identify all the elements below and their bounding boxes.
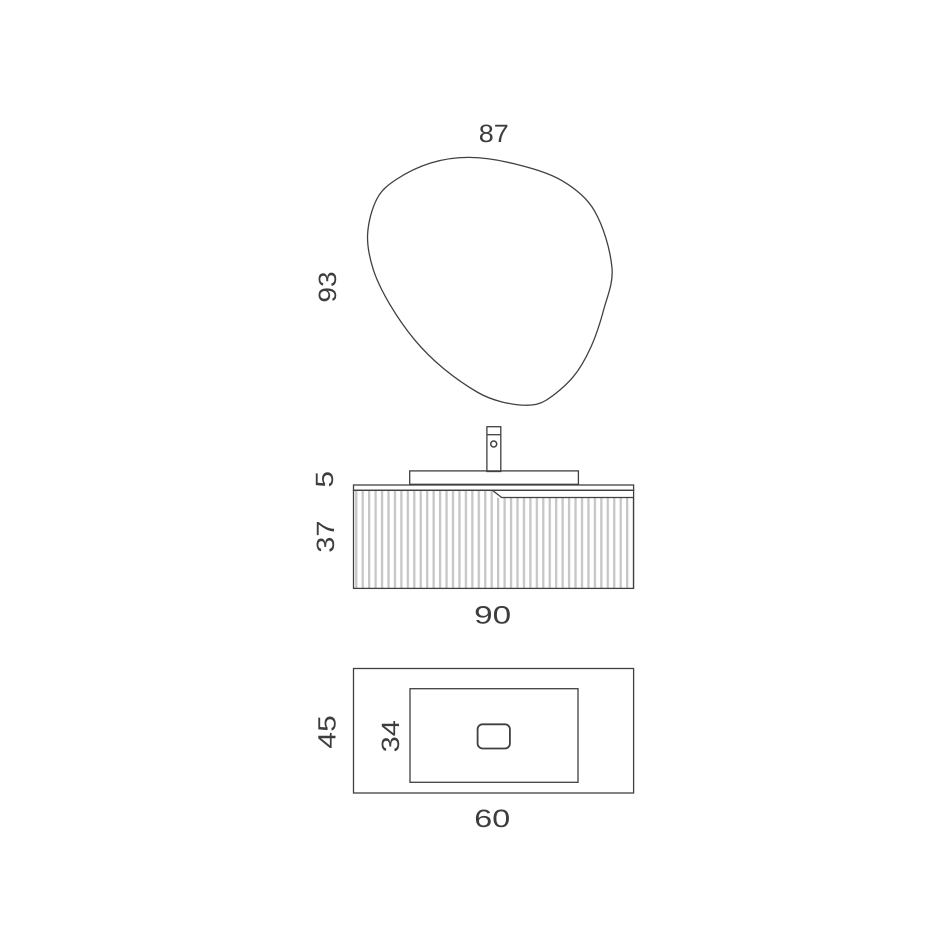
svg-text:87: 87 xyxy=(479,120,509,148)
svg-text:34: 34 xyxy=(377,720,405,752)
svg-text:90: 90 xyxy=(474,602,511,630)
svg-text:60: 60 xyxy=(474,805,510,833)
svg-text:37: 37 xyxy=(312,520,340,552)
svg-text:45: 45 xyxy=(314,715,342,748)
svg-text:93: 93 xyxy=(314,271,342,302)
svg-text:5: 5 xyxy=(311,471,339,488)
